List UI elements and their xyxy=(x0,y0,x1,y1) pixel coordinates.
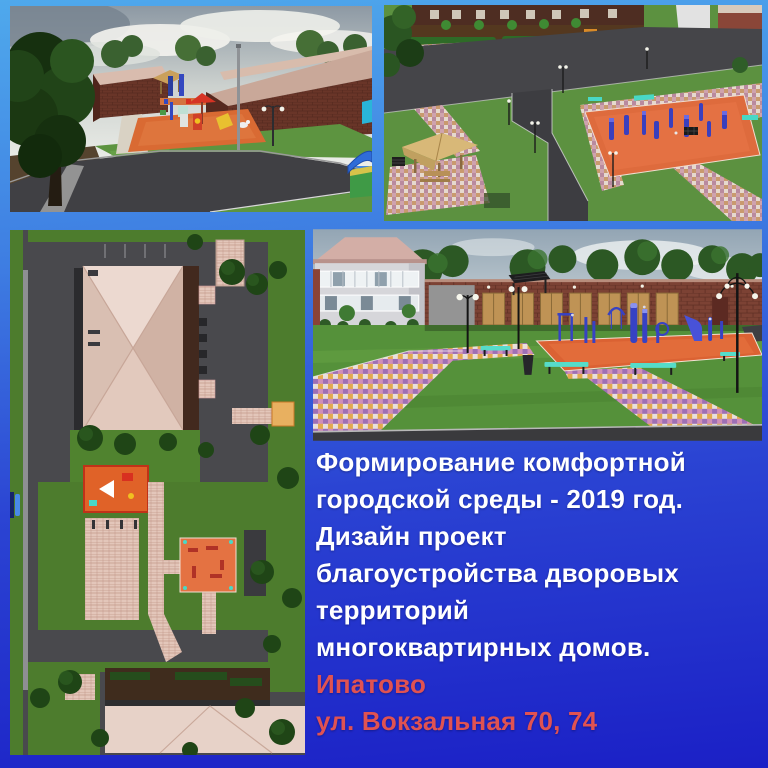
white-building xyxy=(313,237,427,333)
pavilion xyxy=(272,402,294,426)
render-aerial-fitness-court xyxy=(384,5,762,222)
site-plan-top-view xyxy=(10,230,305,755)
poster-canvas: Формирование комфортной городской среды … xyxy=(0,0,768,768)
caption-line-2: городской среды - 2019 год. xyxy=(316,481,764,518)
render-courtyard-playground-image xyxy=(10,6,372,212)
cyan-door xyxy=(362,98,372,124)
street-address: ул. Вокзальная 70, 74 xyxy=(316,703,764,740)
caption-block: Формирование комфортной городской среды … xyxy=(316,444,764,740)
render-street-fitness-area-image xyxy=(313,229,762,441)
render-courtyard-playground xyxy=(10,6,372,212)
sidewalk xyxy=(23,270,28,690)
caption-line-1: Формирование комфортной xyxy=(316,444,764,481)
caption-line-4: благоустройства дворовых xyxy=(316,555,764,592)
site-plan-image xyxy=(10,230,305,755)
render-street-fitness-area xyxy=(313,229,762,441)
caption-line-3: Дизайн проект xyxy=(316,518,764,555)
city-name: Ипатово xyxy=(316,666,764,703)
caption-line-5: территорий xyxy=(316,592,764,629)
entrance-porch xyxy=(199,380,215,398)
main-building xyxy=(74,266,215,430)
entrance-porch xyxy=(199,286,215,304)
render-aerial-fitness-court-image xyxy=(384,5,762,221)
playground-pad xyxy=(84,466,148,512)
bbq-grill xyxy=(392,157,405,166)
fitness-pad xyxy=(180,538,236,592)
caption-line-6: многоквартирных домов. xyxy=(316,629,764,666)
